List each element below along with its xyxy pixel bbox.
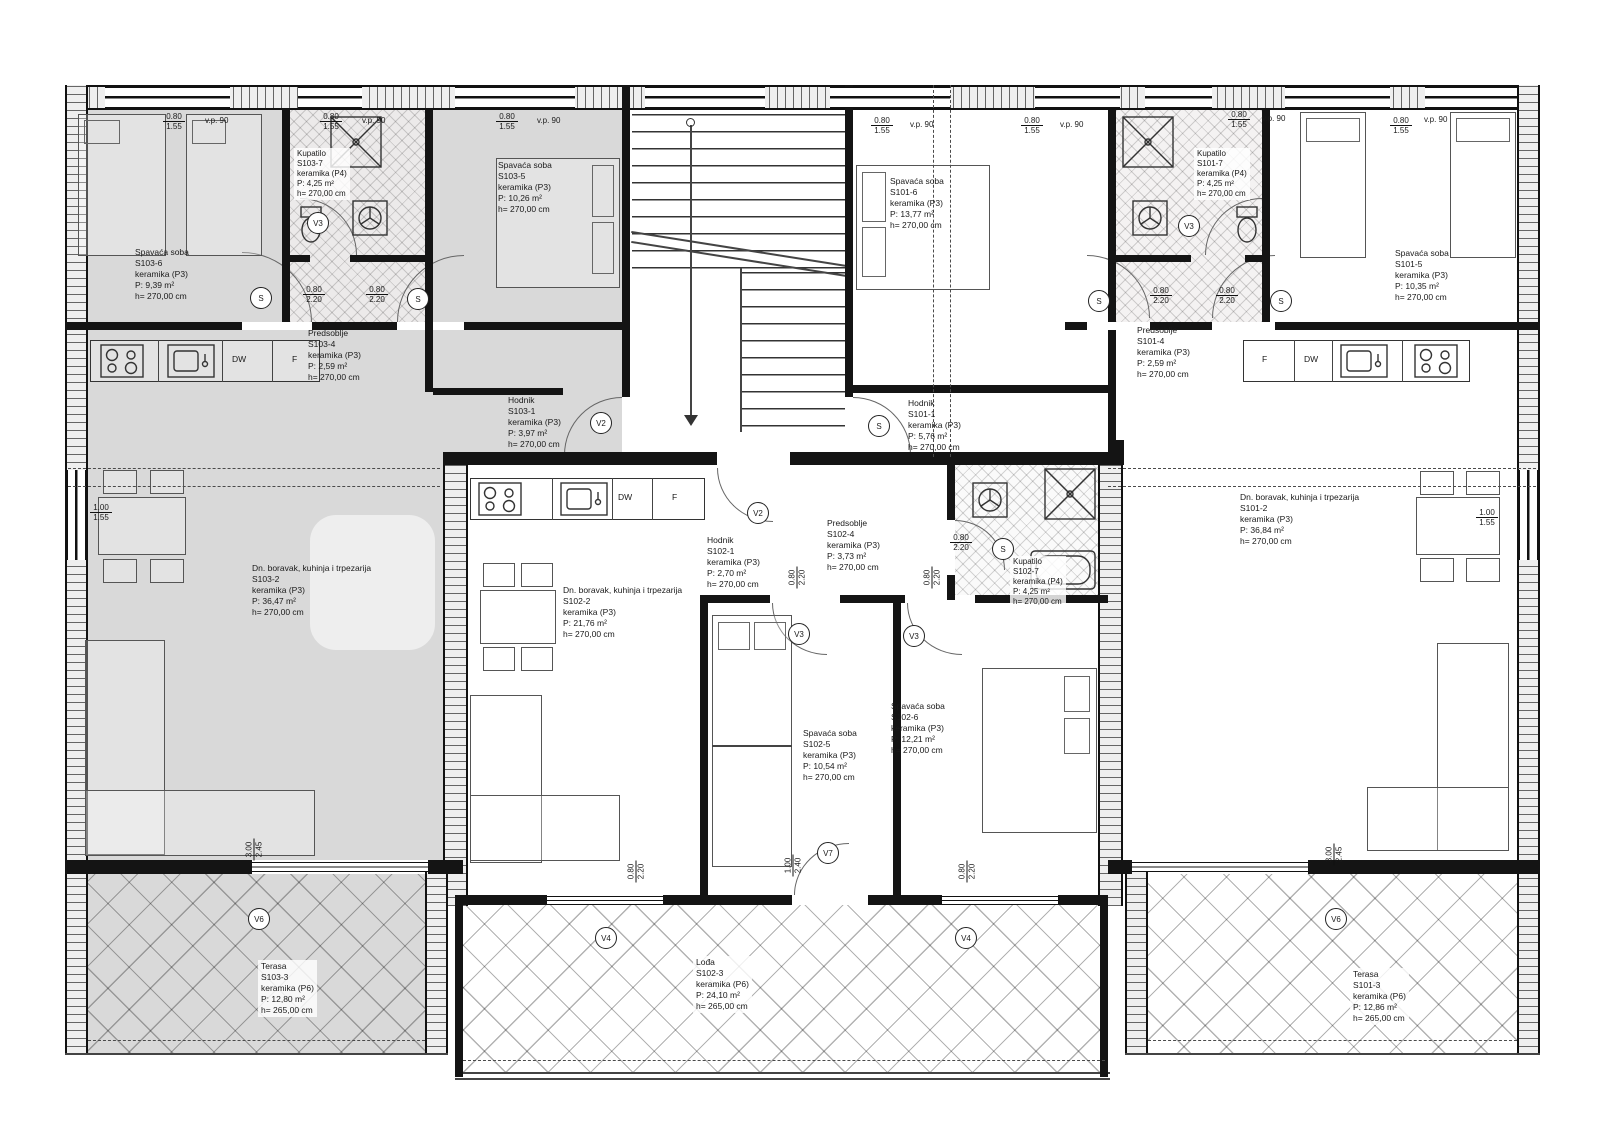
wall-party-right xyxy=(1098,460,1123,906)
room-label-s103-4: PredsobljeS103-4keramika (P3)P: 2,59 m²h… xyxy=(308,328,361,383)
wall-terrace-left xyxy=(425,865,448,1055)
wall xyxy=(947,575,955,600)
window xyxy=(105,87,230,108)
wall xyxy=(868,895,942,905)
door-tag: S xyxy=(250,287,272,309)
pillow-icon xyxy=(84,120,120,144)
sliding-door-terrace-left xyxy=(252,862,428,872)
pillow-icon xyxy=(1456,118,1510,142)
window-sill-label: v.p. 90 xyxy=(1060,120,1083,129)
wall xyxy=(455,895,463,1077)
wall xyxy=(947,455,955,520)
stair-direction-arrow xyxy=(684,415,698,426)
opening-dim: 3.002.45 xyxy=(1325,844,1344,866)
door-tag: V3 xyxy=(307,212,329,234)
wall xyxy=(700,595,770,603)
window-living-left xyxy=(67,470,86,560)
door-dim: 0.802.20 xyxy=(1216,286,1238,305)
window-stairwell xyxy=(645,87,765,108)
door-dim: 0.802.20 xyxy=(303,285,325,304)
chair-icon xyxy=(103,470,137,494)
window-dim: 0.801.55 xyxy=(1021,116,1043,135)
washing-machine-icon xyxy=(1132,200,1168,236)
wall-stair-right xyxy=(845,85,853,397)
shower-icon xyxy=(1122,116,1174,168)
window-dim: 0.801.55 xyxy=(163,112,185,131)
window-dim: 0.801.55 xyxy=(871,116,893,135)
stair-walkline xyxy=(690,125,692,417)
wall xyxy=(1100,895,1108,1077)
loggia-edge xyxy=(455,1078,1110,1080)
room-label-s103-6: Spavaća sobaS103-6keramika (P3)P: 9,39 m… xyxy=(135,247,189,302)
room-label-s102-6: Spavaća sobaS102-6keramika (P3)P: 12,21 … xyxy=(891,701,945,756)
window-dim: 1.001.55 xyxy=(90,503,112,522)
washing-machine-icon xyxy=(972,482,1008,518)
room-label-s102-5: Spavaća sobaS102-5keramika (P3)P: 10,54 … xyxy=(803,728,857,783)
window-dim: 0.801.55 xyxy=(320,112,342,131)
window-living-right xyxy=(1519,470,1538,560)
washing-machine-icon xyxy=(352,200,388,236)
wall xyxy=(428,860,463,874)
chair-icon xyxy=(521,647,553,671)
chair-icon xyxy=(521,563,553,587)
sink-icon xyxy=(560,482,608,516)
wall xyxy=(853,385,1108,393)
counter-divider xyxy=(158,340,159,382)
room-label-s101-4: PredsobljeS101-4keramika (P3)P: 2,59 m²h… xyxy=(1137,325,1190,380)
window-sill-label: v.p. 90 xyxy=(537,116,560,125)
dishwasher-label: DW xyxy=(1304,354,1318,364)
terrace-edge xyxy=(1125,1053,1540,1055)
door-tag: S xyxy=(1088,290,1110,312)
window-dim: 0.801.55 xyxy=(1228,110,1250,129)
window-dim: 0.801.55 xyxy=(496,112,518,131)
door-dim: 0.802.20 xyxy=(950,533,972,552)
chair-icon xyxy=(1420,471,1454,495)
sofa-icon xyxy=(470,795,620,861)
wall xyxy=(1245,255,1265,262)
window-dim: 0.802.20 xyxy=(958,861,977,883)
sofa-icon xyxy=(85,790,315,856)
stove-icon xyxy=(478,482,522,516)
room-label-s101-2: Dn. boravak, kuhinja i trpezarijaS101-2k… xyxy=(1240,492,1359,547)
freezer-label: F xyxy=(292,354,297,364)
wall xyxy=(290,255,310,262)
room-label-s103-1: HodnikS103-1keramika (P3)P: 3,97 m²h= 27… xyxy=(508,395,561,450)
wall xyxy=(700,595,708,895)
stair-walkline-start xyxy=(686,118,695,127)
sliding-door-terrace-right xyxy=(1132,862,1308,872)
door-tag: S xyxy=(868,415,890,437)
door-tag: V2 xyxy=(590,412,612,434)
wall xyxy=(663,895,792,905)
pillow-icon xyxy=(718,622,750,650)
room-label-s101-1: HodnikS101-1keramika (P3)P: 5,76 m²h= 27… xyxy=(908,398,961,453)
room-label-s101-7: KupatiloS101-7keramika (P4)P: 4,25 m²h= … xyxy=(1194,148,1250,200)
wall xyxy=(65,860,252,874)
pillow-icon xyxy=(754,622,786,650)
wall xyxy=(433,388,563,395)
room-label-s103-2: Dn. boravak, kuhinja i trpezarijaS103-2k… xyxy=(252,563,371,618)
overhang-dashed-line xyxy=(68,468,440,469)
door-tag: V3 xyxy=(788,623,810,645)
window-sill-label: v.p. 90 xyxy=(205,116,228,125)
chair-icon xyxy=(1466,471,1500,495)
bed-icon xyxy=(712,615,792,867)
terrace-area-s103-3 xyxy=(88,874,425,1054)
freezer-label: F xyxy=(672,492,677,502)
wall-terrace-right xyxy=(1125,865,1148,1055)
terrace-edge-dashed xyxy=(88,1040,425,1041)
wall xyxy=(1065,322,1087,330)
window xyxy=(1145,87,1212,108)
overhang-dashed-line xyxy=(1108,468,1536,469)
room-label-s102-3: LođaS102-3keramika (P6)P: 24,10 m²h= 265… xyxy=(693,956,752,1013)
terrace-area-s101-3 xyxy=(1148,874,1517,1054)
pillow-icon xyxy=(1064,718,1090,754)
chair-icon xyxy=(1466,558,1500,582)
pillow-icon xyxy=(862,172,886,222)
terrace-edge-dashed xyxy=(1148,1040,1517,1041)
room-label-s102-1: HodnikS102-1keramika (P3)P: 2,70 m²h= 27… xyxy=(707,535,760,590)
door-tag: S xyxy=(1270,290,1292,312)
wall xyxy=(1108,330,1116,455)
wall xyxy=(350,255,425,262)
room-label-s101-3: TerasaS101-3keramika (P6)P: 12,86 m²h= 2… xyxy=(1350,968,1409,1025)
wall xyxy=(1108,440,1124,465)
window-dim: 1.001.55 xyxy=(1476,508,1498,527)
chair-icon xyxy=(103,559,137,583)
window-sill-label: v.p. 90 xyxy=(910,120,933,129)
chair-icon xyxy=(1420,558,1454,582)
door-dim: 0.802.20 xyxy=(923,567,942,589)
window xyxy=(298,87,362,108)
pillow-icon xyxy=(1306,118,1360,142)
door-tag: V7 xyxy=(817,842,839,864)
bed-divider xyxy=(712,745,792,747)
door-dim: 0.802.20 xyxy=(366,285,388,304)
room-label-s103-3: TerasaS103-3keramika (P6)P: 12,80 m²h= 2… xyxy=(258,960,317,1017)
counter-divider xyxy=(552,478,553,520)
counter-divider xyxy=(1294,340,1295,382)
room-label-s102-4: PredsobljeS102-4keramika (P3)P: 3,73 m²h… xyxy=(827,518,880,573)
stove-icon xyxy=(100,344,144,378)
door-tag: V3 xyxy=(1178,215,1200,237)
stair-stringer xyxy=(740,268,742,432)
window-dim: 0.802.20 xyxy=(627,861,646,883)
room-label-s103-5: Spavaća sobaS103-5keramika (P3)P: 10,26 … xyxy=(498,160,552,215)
room-label-s101-6: Spavaća sobaS101-6keramika (P3)P: 13,77 … xyxy=(890,176,944,231)
window-sill-label: v.p. 90 xyxy=(1262,114,1285,123)
window-loggia xyxy=(547,896,663,905)
wall xyxy=(460,895,547,905)
counter-divider xyxy=(272,340,273,382)
sink-icon xyxy=(167,344,215,378)
window-sill-label: v.p. 90 xyxy=(1424,115,1447,124)
window-tag: V6 xyxy=(1325,908,1347,930)
pillow-icon xyxy=(592,222,614,274)
stove-icon xyxy=(1414,344,1458,378)
wall xyxy=(1116,255,1191,262)
floor-plan: S S V3 V2 S V3 S S V2 V3 V3 S V7 V4 V4 V… xyxy=(0,0,1600,1129)
window-dim: 0.801.55 xyxy=(1390,116,1412,135)
door-tag: V2 xyxy=(747,502,769,524)
window xyxy=(1035,87,1120,108)
wall xyxy=(464,322,622,330)
window-tag: V4 xyxy=(595,927,617,949)
wall xyxy=(425,322,433,392)
shower-icon xyxy=(1044,468,1096,520)
counter-divider xyxy=(652,478,653,520)
door-tag: V3 xyxy=(903,625,925,647)
dining-table-icon xyxy=(480,590,556,644)
loggia-edge xyxy=(455,1072,1110,1074)
counter-divider xyxy=(1332,340,1333,382)
window-sill-label: v.p. 90 xyxy=(362,116,385,125)
window xyxy=(830,87,950,108)
counter-divider xyxy=(612,478,613,520)
wall xyxy=(425,110,433,322)
window xyxy=(1285,87,1390,108)
toilet-icon xyxy=(1234,206,1260,244)
window xyxy=(455,87,575,108)
chair-icon xyxy=(150,470,184,494)
door-tag: S xyxy=(992,538,1014,560)
wall xyxy=(65,322,242,330)
wall-stair-left xyxy=(622,85,630,397)
room-label-s102-7: KupatiloS102-7keramika (P4)P: 4,25 m²h= … xyxy=(1010,556,1066,608)
wall xyxy=(282,110,290,322)
chair-icon xyxy=(483,647,515,671)
wall xyxy=(1108,110,1116,322)
loggia-area-s102-3 xyxy=(463,905,1100,1073)
overhang-dashed-line xyxy=(68,486,440,487)
wall-party-left xyxy=(443,460,468,906)
pillow-icon xyxy=(862,227,886,277)
window-tag: V4 xyxy=(955,927,977,949)
room-label-s103-7: KupatiloS103-7keramika (P4)P: 4,25 m²h= … xyxy=(294,148,350,200)
chair-icon xyxy=(483,563,515,587)
door-tag: S xyxy=(407,288,429,310)
overhang-dashed-line xyxy=(1108,486,1536,487)
door-dim: 0.802.20 xyxy=(1150,286,1172,305)
dishwasher-label: DW xyxy=(618,492,632,502)
freezer-label: F xyxy=(1262,354,1267,364)
wall xyxy=(1262,110,1270,322)
room-label-s101-5: Spavaća sobaS101-5keramika (P3)P: 10,35 … xyxy=(1395,248,1449,303)
dishwasher-label: DW xyxy=(232,354,246,364)
chair-icon xyxy=(150,559,184,583)
sink-icon xyxy=(1340,344,1388,378)
sofa-icon xyxy=(1367,787,1509,851)
wall xyxy=(1108,860,1132,874)
wall xyxy=(1275,322,1540,330)
window-tag: V6 xyxy=(248,908,270,930)
stairs-lower-flight xyxy=(742,272,845,432)
window xyxy=(1425,87,1517,108)
wall xyxy=(443,452,717,465)
counter-divider xyxy=(1402,340,1403,382)
terrace-edge xyxy=(65,1053,448,1055)
room-label-s102-2: Dn. boravak, kuhinja i trpezarijaS102-2k… xyxy=(563,585,682,640)
counter-divider xyxy=(222,340,223,382)
wall-exterior-right xyxy=(1517,85,1540,1055)
pillow-icon xyxy=(592,165,614,217)
loggia-edge-dashed xyxy=(463,1060,1105,1061)
door-dim: 0.802.20 xyxy=(788,567,807,589)
door-dim: 1.002.40 xyxy=(784,855,803,877)
opening-dim: 3.002.45 xyxy=(245,839,264,861)
window-loggia xyxy=(942,896,1058,905)
pillow-icon xyxy=(1064,676,1090,712)
